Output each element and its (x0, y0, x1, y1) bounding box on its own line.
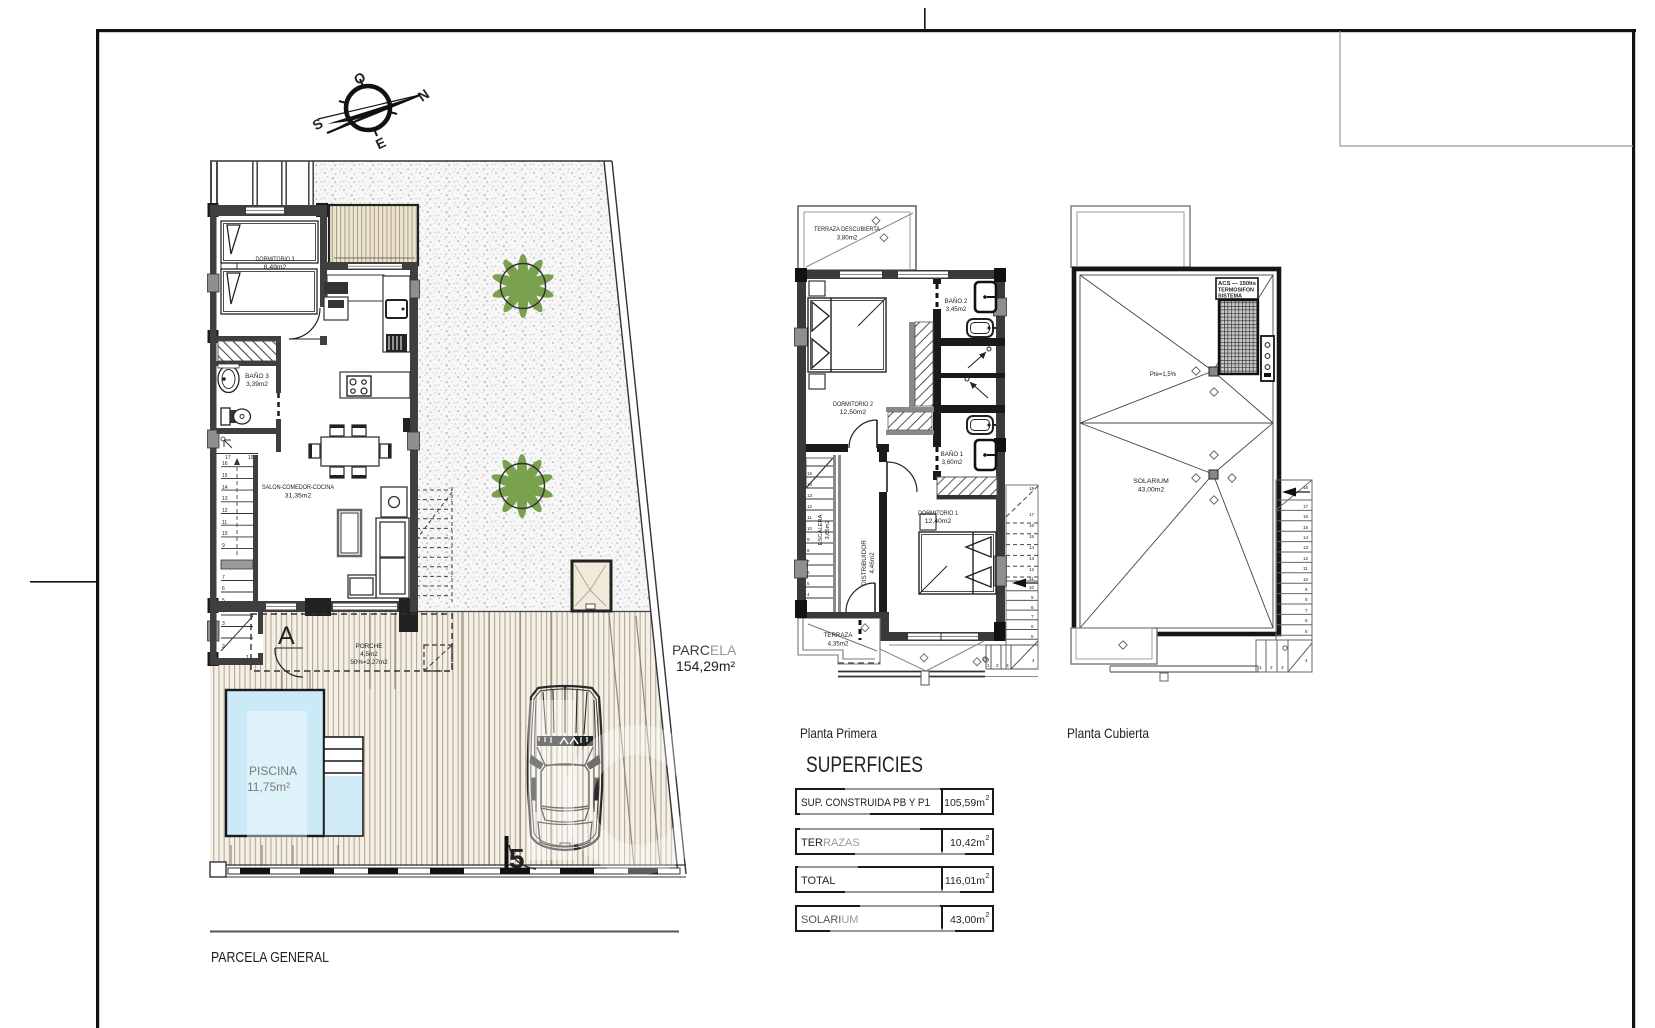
svg-text:DORMITORIO 1: DORMITORIO 1 (918, 510, 958, 517)
svg-text:14: 14 (1303, 535, 1309, 540)
svg-text:1: 1 (987, 663, 990, 668)
svg-text:16: 16 (222, 461, 228, 467)
svg-text:DORMITORIO 2: DORMITORIO 2 (833, 401, 873, 408)
svg-text:6: 6 (222, 586, 225, 592)
svg-text:SOLARIUM: SOLARIUM (1133, 478, 1169, 485)
svg-text:3: 3 (1281, 665, 1284, 670)
svg-text:7: 7 (807, 559, 810, 564)
svg-text:14: 14 (222, 485, 228, 491)
svg-text:3,80m2: 3,80m2 (837, 235, 858, 242)
svg-text:Planta Primera: Planta Primera (800, 725, 877, 741)
svg-text:13: 13 (807, 493, 813, 498)
svg-text:4: 4 (1032, 658, 1035, 663)
svg-text:BAÑO 1: BAÑO 1 (941, 451, 964, 458)
svg-text:7: 7 (1031, 614, 1034, 619)
svg-text:11: 11 (807, 515, 812, 520)
svg-text:SUPERFICIES: SUPERFICIES (806, 752, 923, 777)
svg-text:43,00m: 43,00m (950, 914, 985, 926)
svg-text:3: 3 (222, 621, 225, 627)
svg-text:8: 8 (807, 548, 810, 553)
svg-text:2: 2 (986, 873, 990, 880)
svg-text:SUP. CONSTRUIDA PB Y P1: SUP. CONSTRUIDA PB Y P1 (801, 797, 930, 809)
svg-text:2: 2 (986, 835, 990, 842)
svg-text:5: 5 (509, 843, 525, 874)
svg-text:5: 5 (1031, 634, 1034, 639)
svg-text:PARCELA GENERAL: PARCELA GENERAL (211, 949, 329, 966)
svg-text:PARCELA: PARCELA (672, 642, 737, 658)
svg-text:10: 10 (1029, 585, 1035, 590)
svg-text:3,39m2: 3,39m2 (246, 381, 268, 388)
svg-text:7: 7 (1305, 608, 1308, 613)
svg-text:TERRAZAS: TERRAZAS (801, 837, 860, 849)
svg-text:6: 6 (1031, 624, 1034, 629)
svg-text:16: 16 (1303, 514, 1309, 519)
svg-text:SALON-COMEDOR-COCINA: SALON-COMEDOR-COCINA (262, 484, 334, 491)
svg-text:4,5m2: 4,5m2 (360, 651, 378, 658)
svg-text:11: 11 (1029, 576, 1034, 581)
svg-text:12: 12 (807, 504, 813, 509)
svg-text:13: 13 (1303, 545, 1309, 550)
svg-text:16: 16 (1029, 523, 1035, 528)
svg-text:12: 12 (1303, 556, 1309, 561)
svg-text:10: 10 (1303, 577, 1309, 582)
svg-text:3,45m2: 3,45m2 (946, 306, 967, 313)
svg-text:10,42m: 10,42m (950, 837, 985, 849)
svg-text:3,65m2: 3,65m2 (825, 520, 831, 539)
svg-text:5: 5 (1305, 629, 1308, 634)
svg-text:15: 15 (807, 471, 813, 476)
svg-text:11: 11 (222, 520, 227, 526)
svg-text:7: 7 (222, 575, 225, 581)
svg-text:6: 6 (1305, 618, 1308, 623)
svg-text:4,46m2: 4,46m2 (869, 552, 876, 574)
svg-text:31,35m2: 31,35m2 (285, 493, 312, 500)
svg-text:ACS — 150lts: ACS — 150lts (1218, 281, 1256, 287)
svg-text:19: 19 (248, 455, 254, 461)
svg-text:3: 3 (1006, 663, 1009, 668)
svg-text:14: 14 (1029, 545, 1035, 550)
svg-text:14: 14 (807, 482, 813, 487)
svg-text:Pte=1,5%: Pte=1,5% (1150, 372, 1177, 378)
svg-text:17: 17 (1303, 504, 1309, 509)
svg-text:5: 5 (807, 581, 810, 586)
svg-text:9: 9 (807, 537, 810, 542)
svg-text:17: 17 (1029, 512, 1035, 517)
svg-text:TERRAZA: TERRAZA (824, 632, 854, 639)
svg-text:ESCALERA: ESCALERA (818, 514, 824, 545)
svg-text:12,50m2: 12,50m2 (840, 409, 867, 416)
svg-text:2: 2 (1270, 665, 1273, 670)
svg-text:SISTEMA: SISTEMA (1218, 294, 1242, 300)
svg-text:15: 15 (1303, 525, 1309, 530)
svg-text:9: 9 (222, 543, 225, 549)
svg-text:6: 6 (807, 570, 810, 575)
svg-text:BAÑO 3: BAÑO 3 (245, 371, 269, 380)
svg-text:4: 4 (807, 592, 810, 597)
svg-text:13: 13 (1029, 556, 1035, 561)
svg-text:105,59m: 105,59m (944, 797, 985, 809)
svg-text:50%=2,27m2: 50%=2,27m2 (350, 659, 388, 666)
svg-text:2: 2 (986, 795, 990, 802)
svg-text:43,00m2: 43,00m2 (1138, 487, 1165, 494)
svg-text:8,49m2: 8,49m2 (264, 264, 287, 271)
svg-text:BAÑO 2: BAÑO 2 (945, 298, 968, 305)
svg-text:DISTRIBUIDOR: DISTRIBUIDOR (861, 540, 868, 586)
svg-text:15: 15 (222, 473, 228, 479)
svg-text:12,40m2: 12,40m2 (925, 518, 952, 525)
svg-text:4: 4 (1305, 658, 1308, 663)
svg-text:10: 10 (807, 526, 813, 531)
svg-text:154,29m²: 154,29m² (676, 658, 735, 674)
svg-text:15: 15 (1029, 534, 1035, 539)
svg-text:11: 11 (1303, 566, 1308, 571)
svg-text:4,35m2: 4,35m2 (828, 641, 849, 648)
svg-text:9: 9 (1031, 595, 1034, 600)
svg-text:2: 2 (222, 644, 225, 650)
svg-text:Planta Cubierta: Planta Cubierta (1067, 725, 1149, 741)
svg-text:18: 18 (1029, 486, 1035, 491)
svg-text:12: 12 (1029, 567, 1035, 572)
svg-text:8: 8 (1031, 605, 1034, 610)
svg-text:1: 1 (1259, 665, 1262, 670)
svg-text:SOLARIUM: SOLARIUM (801, 914, 858, 926)
svg-text:PORCHE: PORCHE (356, 643, 383, 650)
svg-text:A: A (278, 622, 295, 650)
svg-text:10: 10 (222, 531, 228, 537)
svg-text:12: 12 (222, 508, 228, 514)
svg-text:TOTAL: TOTAL (801, 875, 835, 887)
svg-text:13: 13 (222, 496, 228, 502)
svg-text:2: 2 (996, 663, 999, 668)
svg-text:2: 2 (986, 912, 990, 919)
svg-text:8: 8 (1305, 597, 1308, 602)
svg-text:TERRAZA DESCUBIERTA: TERRAZA DESCUBIERTA (814, 226, 881, 233)
svg-text:116,01m: 116,01m (945, 875, 985, 887)
svg-text:3,60m2: 3,60m2 (942, 459, 963, 466)
svg-text:18: 18 (1303, 485, 1309, 490)
svg-text:9: 9 (1305, 587, 1308, 592)
svg-text:DORMITORIO 3: DORMITORIO 3 (256, 256, 295, 263)
